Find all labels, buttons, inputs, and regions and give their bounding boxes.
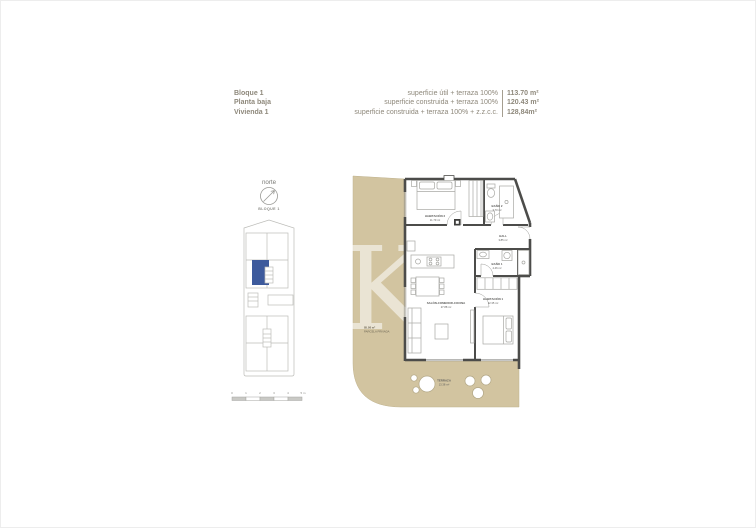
- unit-info-floor: Planta baja: [234, 98, 271, 107]
- coffee-table-icon: [435, 324, 448, 339]
- terrace-chair-icon: [413, 387, 419, 393]
- room-area-hall: 3.85 m²: [498, 238, 507, 242]
- room-area-hab1: 12.35 m²: [488, 301, 499, 305]
- room-label-bano2: BAÑO 2: [492, 203, 503, 208]
- area-label-construida-zcc: superficie construida + terraza 100% + z…: [281, 108, 498, 117]
- floorplan-drawing: K 85.08 m² PARCELA PRIVADA: [351, 157, 573, 427]
- site-key-plan: [244, 220, 294, 376]
- room-area-terraza: 13.38 m²: [439, 382, 450, 386]
- scale-bar: 0 1 2 3 4 5 m: [231, 391, 306, 401]
- bedroom2-furniture: [412, 181, 484, 217]
- terrace-table-icon: [419, 376, 435, 392]
- dining-table-icon: [416, 277, 439, 296]
- terrace-chair-icon: [411, 375, 417, 381]
- room-area-bano1: 4.46 m²: [492, 266, 501, 270]
- scale-tick-0: 0: [231, 391, 233, 395]
- area-value-util: 113.70 m²: [507, 89, 567, 98]
- nightstand-icon: [456, 181, 461, 187]
- north-label: norte: [262, 179, 277, 186]
- room-label-salon: SALÓN-COMEDOR-COCINA: [427, 300, 466, 305]
- area-value-construida-zcc: 128,84m²: [507, 108, 567, 117]
- toilet-icon: [487, 184, 495, 188]
- header-divider: [502, 90, 503, 117]
- room-label-bano1: BAÑO 1: [492, 261, 503, 266]
- scale-tick-5: 5 m: [300, 391, 306, 395]
- area-label-util: superficie útil + terraza 100%: [281, 89, 498, 98]
- room-area-salon: 27.88 m²: [441, 305, 452, 309]
- compass-needle-icon: [264, 191, 275, 202]
- unit-info-unit: Vivienda 1: [234, 108, 271, 117]
- siteplan-block-label: BLOQUE 1: [258, 207, 280, 211]
- room-label-hab1: HABITACIÓN 1: [483, 296, 504, 301]
- room-area-bano2: 3.70 m²: [492, 208, 501, 212]
- stairs-mid: [248, 293, 258, 307]
- nightstand-icon: [412, 181, 417, 187]
- bath1-fixtures: [477, 251, 529, 275]
- room-area-hab2: 11.79 m²: [430, 218, 441, 222]
- scale-tick-3: 3: [273, 391, 275, 395]
- room-label-terraza: TERRAZA: [437, 379, 452, 383]
- siteplan-panel: norte BLOQUE 1 0 1: [229, 171, 319, 411]
- parcel-name-text: PARCELA PRIVADA: [364, 330, 390, 334]
- site-boundary: [244, 220, 294, 376]
- bedroom1-furniture: [477, 278, 517, 344]
- scale-tick-1: 1: [245, 391, 247, 395]
- bath2-fixtures: [486, 184, 514, 222]
- shaft-inner: [456, 221, 459, 224]
- living-furniture: [408, 308, 474, 353]
- sofa-icon: [408, 308, 421, 353]
- area-labels: superficie útil + terraza 100% superfici…: [281, 89, 498, 117]
- area-values: 113.70 m² 120.43 m² 128,84m²: [507, 89, 567, 117]
- dining-furniture: [411, 277, 444, 296]
- room-label-hall: HALL: [499, 234, 507, 238]
- service-mid: [268, 295, 293, 305]
- tv-unit-icon: [471, 310, 475, 343]
- fridge-icon: [407, 241, 415, 251]
- wardrobe-icon: [477, 278, 517, 290]
- cooktop-icon: [427, 257, 441, 266]
- floorplan-sheet: Bloque 1 Planta baja Vivienda 1 superfic…: [0, 0, 756, 528]
- kitchen-sink-icon: [416, 259, 421, 264]
- room-label-hab2: HABITACIÓN 2: [425, 213, 446, 218]
- plant-icon: [465, 376, 475, 386]
- unit-info-block: Bloque 1: [234, 89, 271, 98]
- plant-icon: [473, 388, 484, 399]
- scale-tick-2: 2: [259, 391, 261, 395]
- area-value-construida: 120.43 m²: [507, 98, 567, 107]
- area-label-construida: superficie construida + terraza 100%: [281, 98, 498, 107]
- scale-tick-4: 4: [287, 391, 289, 395]
- plant-icon: [481, 375, 491, 385]
- unit-info: Bloque 1 Planta baja Vivienda 1: [234, 89, 271, 117]
- north-compass: norte: [261, 179, 278, 205]
